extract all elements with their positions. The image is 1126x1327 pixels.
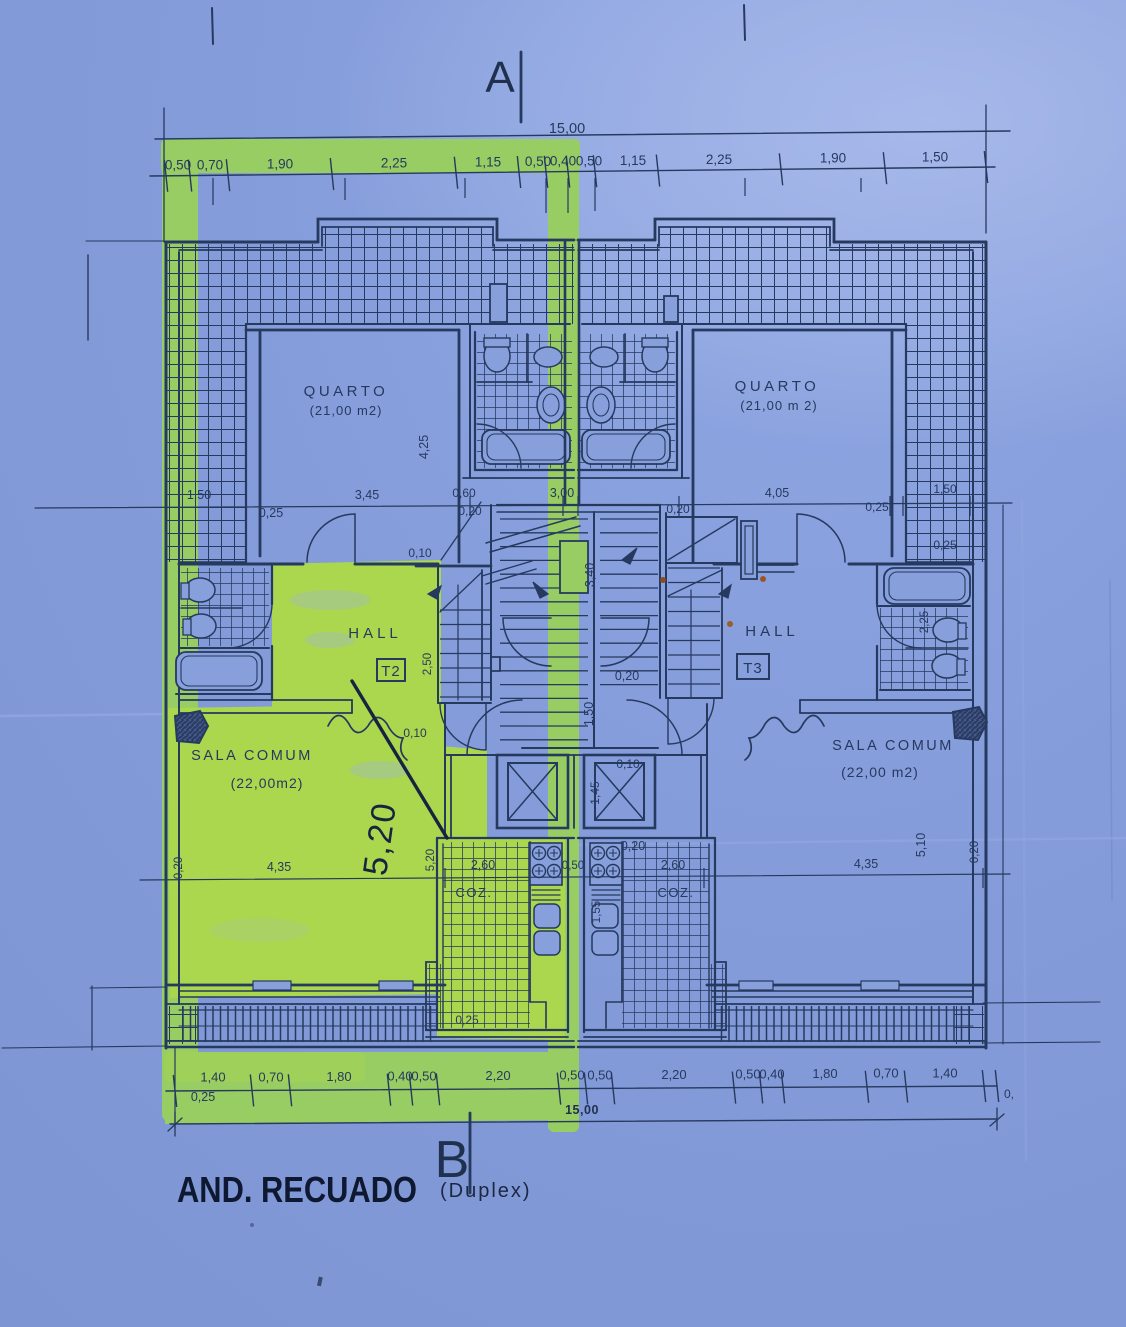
svg-text:4,05: 4,05 (765, 486, 789, 500)
svg-text:0,20: 0,20 (621, 839, 645, 853)
svg-text:T2: T2 (381, 663, 401, 680)
svg-text:1,45: 1,45 (588, 781, 602, 805)
svg-text:(Duplex): (Duplex) (440, 1180, 532, 1202)
svg-text:15,00: 15,00 (565, 1103, 599, 1117)
svg-text:1,80: 1,80 (812, 1066, 837, 1081)
svg-text:0,50: 0,50 (165, 158, 191, 173)
svg-text:3,40: 3,40 (583, 563, 597, 587)
svg-text:0,25: 0,25 (191, 1090, 215, 1104)
svg-text:5,10: 5,10 (914, 833, 928, 857)
svg-text:0,: 0, (1004, 1087, 1014, 1101)
svg-text:5,20: 5,20 (425, 849, 437, 871)
svg-text:4,35: 4,35 (854, 857, 878, 871)
svg-text:SALA COMUM: SALA COMUM (191, 748, 313, 764)
svg-text:1,90: 1,90 (267, 157, 293, 172)
svg-text:0,25: 0,25 (933, 538, 957, 552)
svg-text:15,00: 15,00 (549, 121, 585, 137)
svg-text:2,25: 2,25 (706, 152, 732, 167)
svg-text:A: A (485, 53, 515, 102)
svg-text:0,70: 0,70 (873, 1066, 898, 1081)
svg-text:4,25: 4,25 (417, 435, 431, 459)
svg-text:0,20: 0,20 (458, 504, 482, 518)
svg-text:0,50: 0,50 (559, 1068, 584, 1083)
svg-text:1,15: 1,15 (620, 153, 646, 168)
svg-text:2,60: 2,60 (661, 858, 685, 872)
svg-text:0,50: 0,50 (587, 1067, 612, 1082)
svg-text:0,60: 0,60 (452, 486, 476, 500)
svg-text:2,60: 2,60 (471, 858, 495, 872)
svg-text:0,70: 0,70 (258, 1069, 283, 1084)
svg-text:0,20: 0,20 (666, 502, 690, 516)
svg-text:0,40: 0,40 (550, 154, 576, 169)
svg-text:0,25: 0,25 (865, 500, 889, 514)
svg-text:0,40: 0,40 (387, 1069, 412, 1084)
svg-text:0,50: 0,50 (735, 1066, 760, 1081)
svg-text:1,80: 1,80 (326, 1069, 351, 1084)
svg-text:0,50: 0,50 (411, 1068, 436, 1083)
svg-text:QUARTO: QUARTO (304, 383, 389, 400)
svg-text:0,70: 0,70 (197, 157, 223, 172)
svg-text:1,50: 1,50 (187, 488, 211, 502)
svg-text:0,10: 0,10 (408, 546, 432, 560)
svg-text:0,25: 0,25 (455, 1013, 479, 1027)
svg-text:T3: T3 (743, 660, 763, 677)
svg-text:SALA COMUM: SALA COMUM (832, 738, 954, 754)
svg-text:1,90: 1,90 (820, 151, 846, 166)
svg-text:3,45: 3,45 (355, 488, 379, 502)
svg-text:(21,00 m 2): (21,00 m 2) (740, 398, 817, 413)
svg-text:1,40: 1,40 (932, 1065, 957, 1080)
svg-text:2,25: 2,25 (381, 155, 407, 170)
svg-text:1,40: 1,40 (200, 1070, 225, 1085)
svg-text:0,50: 0,50 (576, 153, 602, 168)
svg-text:1,50: 1,50 (582, 702, 596, 726)
svg-text:0,20: 0,20 (969, 841, 981, 863)
svg-text:0,10: 0,10 (616, 757, 640, 771)
svg-text:0,25: 0,25 (259, 506, 283, 520)
svg-text:1,55: 1,55 (591, 901, 603, 923)
svg-text:0,20: 0,20 (173, 857, 185, 879)
svg-text:(21,00 m2): (21,00 m2) (310, 403, 383, 418)
svg-text:HALL: HALL (348, 625, 402, 642)
svg-text:0,40: 0,40 (759, 1066, 784, 1081)
svg-text:3,00: 3,00 (550, 486, 574, 500)
svg-text:4,35: 4,35 (267, 860, 291, 874)
svg-text:0,50: 0,50 (525, 154, 551, 169)
svg-text:1,50: 1,50 (922, 150, 948, 165)
svg-text:AND. RECUADO: AND. RECUADO (177, 1169, 417, 1210)
svg-text:0,10: 0,10 (403, 726, 427, 740)
svg-text:1,50: 1,50 (933, 482, 957, 496)
svg-text:0,20: 0,20 (615, 669, 639, 683)
svg-text:2,20: 2,20 (661, 1067, 686, 1082)
svg-text:(22,00 m2): (22,00 m2) (841, 764, 919, 780)
svg-text:2,50: 2,50 (422, 653, 434, 675)
svg-text:2,20: 2,20 (485, 1068, 510, 1083)
svg-text:QUARTO: QUARTO (735, 378, 820, 395)
svg-text:1,15: 1,15 (475, 154, 501, 169)
svg-text:COZ.: COZ. (455, 885, 492, 900)
svg-text:COZ.: COZ. (657, 885, 694, 900)
svg-text:(22,00m2): (22,00m2) (231, 775, 304, 791)
svg-text:HALL: HALL (745, 623, 799, 640)
svg-text:2,25: 2,25 (919, 611, 931, 633)
svg-text:0,50: 0,50 (562, 860, 584, 872)
